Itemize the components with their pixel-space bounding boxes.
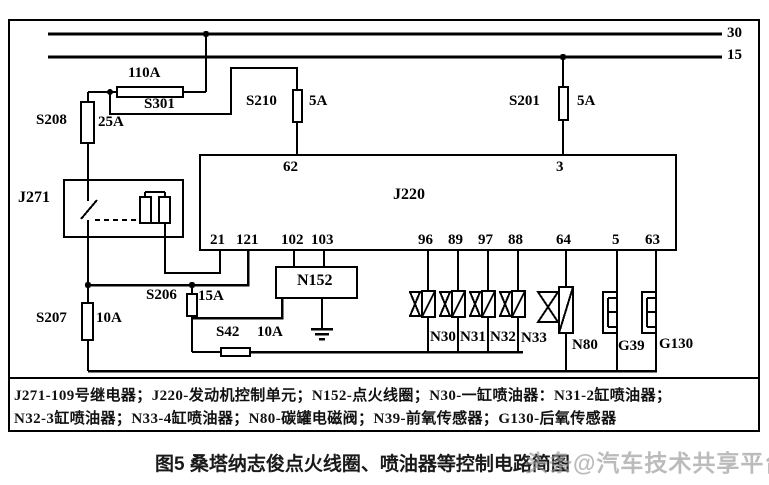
- ecu-pin-121: 121: [236, 233, 259, 249]
- relay-name: J271: [18, 190, 50, 207]
- ecu-pin-63: 63: [645, 233, 660, 249]
- injector-n31-label: N31: [460, 330, 486, 346]
- power-bus-lines: [48, 34, 722, 57]
- fuse-s210-name: S210: [246, 94, 277, 110]
- fuse-s42-wiring: [192, 348, 523, 356]
- legend-line-1: J271-109号继电器；J220-发动机控制单元；N152-点火线圈；N30-…: [14, 384, 756, 405]
- ecu-pin-97: 97: [478, 233, 493, 249]
- fuse-s201-wiring: [559, 57, 568, 155]
- ecu-pin-21: 21: [210, 233, 225, 249]
- figure-caption: 图5 桑塔纳志俊点火线圈、喷油器等控制电路简图: [155, 449, 570, 476]
- fuse-s42-name: S42: [216, 325, 239, 341]
- ecu-pin-103: 103: [311, 233, 334, 249]
- ecu-pin-5: 5: [612, 233, 620, 249]
- evap-valve-label: N80: [572, 338, 598, 354]
- fuse-s42-rating: 10A: [257, 325, 283, 341]
- bus-15-label: 15: [727, 48, 742, 64]
- o2-front-label: G39: [618, 339, 645, 355]
- diagram-frame: [9, 20, 759, 431]
- fuse-s208-wiring: [81, 92, 94, 180]
- relay-box: [64, 180, 183, 237]
- fuse-s206-name: S206: [146, 288, 177, 304]
- fuse-s210-rating: 5A: [309, 94, 327, 110]
- ecu-pin-62: 62: [283, 160, 298, 176]
- ground-symbol: [311, 329, 333, 339]
- bus-30-label: 30: [727, 26, 742, 42]
- ecu-name: J220: [393, 187, 425, 204]
- injector-n33-label: N33: [521, 331, 547, 347]
- o2-rear-label: G130: [659, 337, 693, 353]
- fuse-s201-rating: 5A: [577, 94, 595, 110]
- ecu-pin-96: 96: [418, 233, 433, 249]
- ecu-pin-88: 88: [508, 233, 523, 249]
- fuse-s301-name: S301: [144, 97, 175, 113]
- fuse-s207-name: S207: [36, 311, 67, 327]
- fuse-s208-name: S208: [36, 113, 67, 129]
- injector-n30-label: N30: [430, 330, 456, 346]
- o2-front-symbol: [603, 250, 617, 371]
- injector-n32-label: N32: [490, 330, 516, 346]
- legend-line-2: N32-3缸喷油器；N33-4缸喷油器；N80-碳罐电磁阀；N39-前氧传感器；…: [14, 407, 756, 428]
- fuse-s207-rating: 10A: [96, 311, 122, 327]
- ecu-pin-89: 89: [448, 233, 463, 249]
- ecu-pin-3: 3: [556, 160, 564, 176]
- watermark-text: 头条@汽车技术共享平台: [525, 444, 769, 478]
- ecu-pin-64: 64: [556, 233, 571, 249]
- fuse-s301-rating: 110A: [128, 66, 161, 82]
- wiring-diagram: 30 15 110A S301 S208 25A S210 5A S201 5A…: [0, 0, 769, 485]
- evap-valve-symbol: [538, 250, 573, 371]
- fuse-s208-rating: 25A: [98, 115, 124, 131]
- fuse-s206-rating: 15A: [198, 289, 224, 305]
- ignition-coil-name: N152: [297, 273, 333, 290]
- fuse-s201-name: S201: [509, 94, 540, 110]
- ecu-box: [200, 155, 676, 250]
- ecu-pin-102: 102: [281, 233, 304, 249]
